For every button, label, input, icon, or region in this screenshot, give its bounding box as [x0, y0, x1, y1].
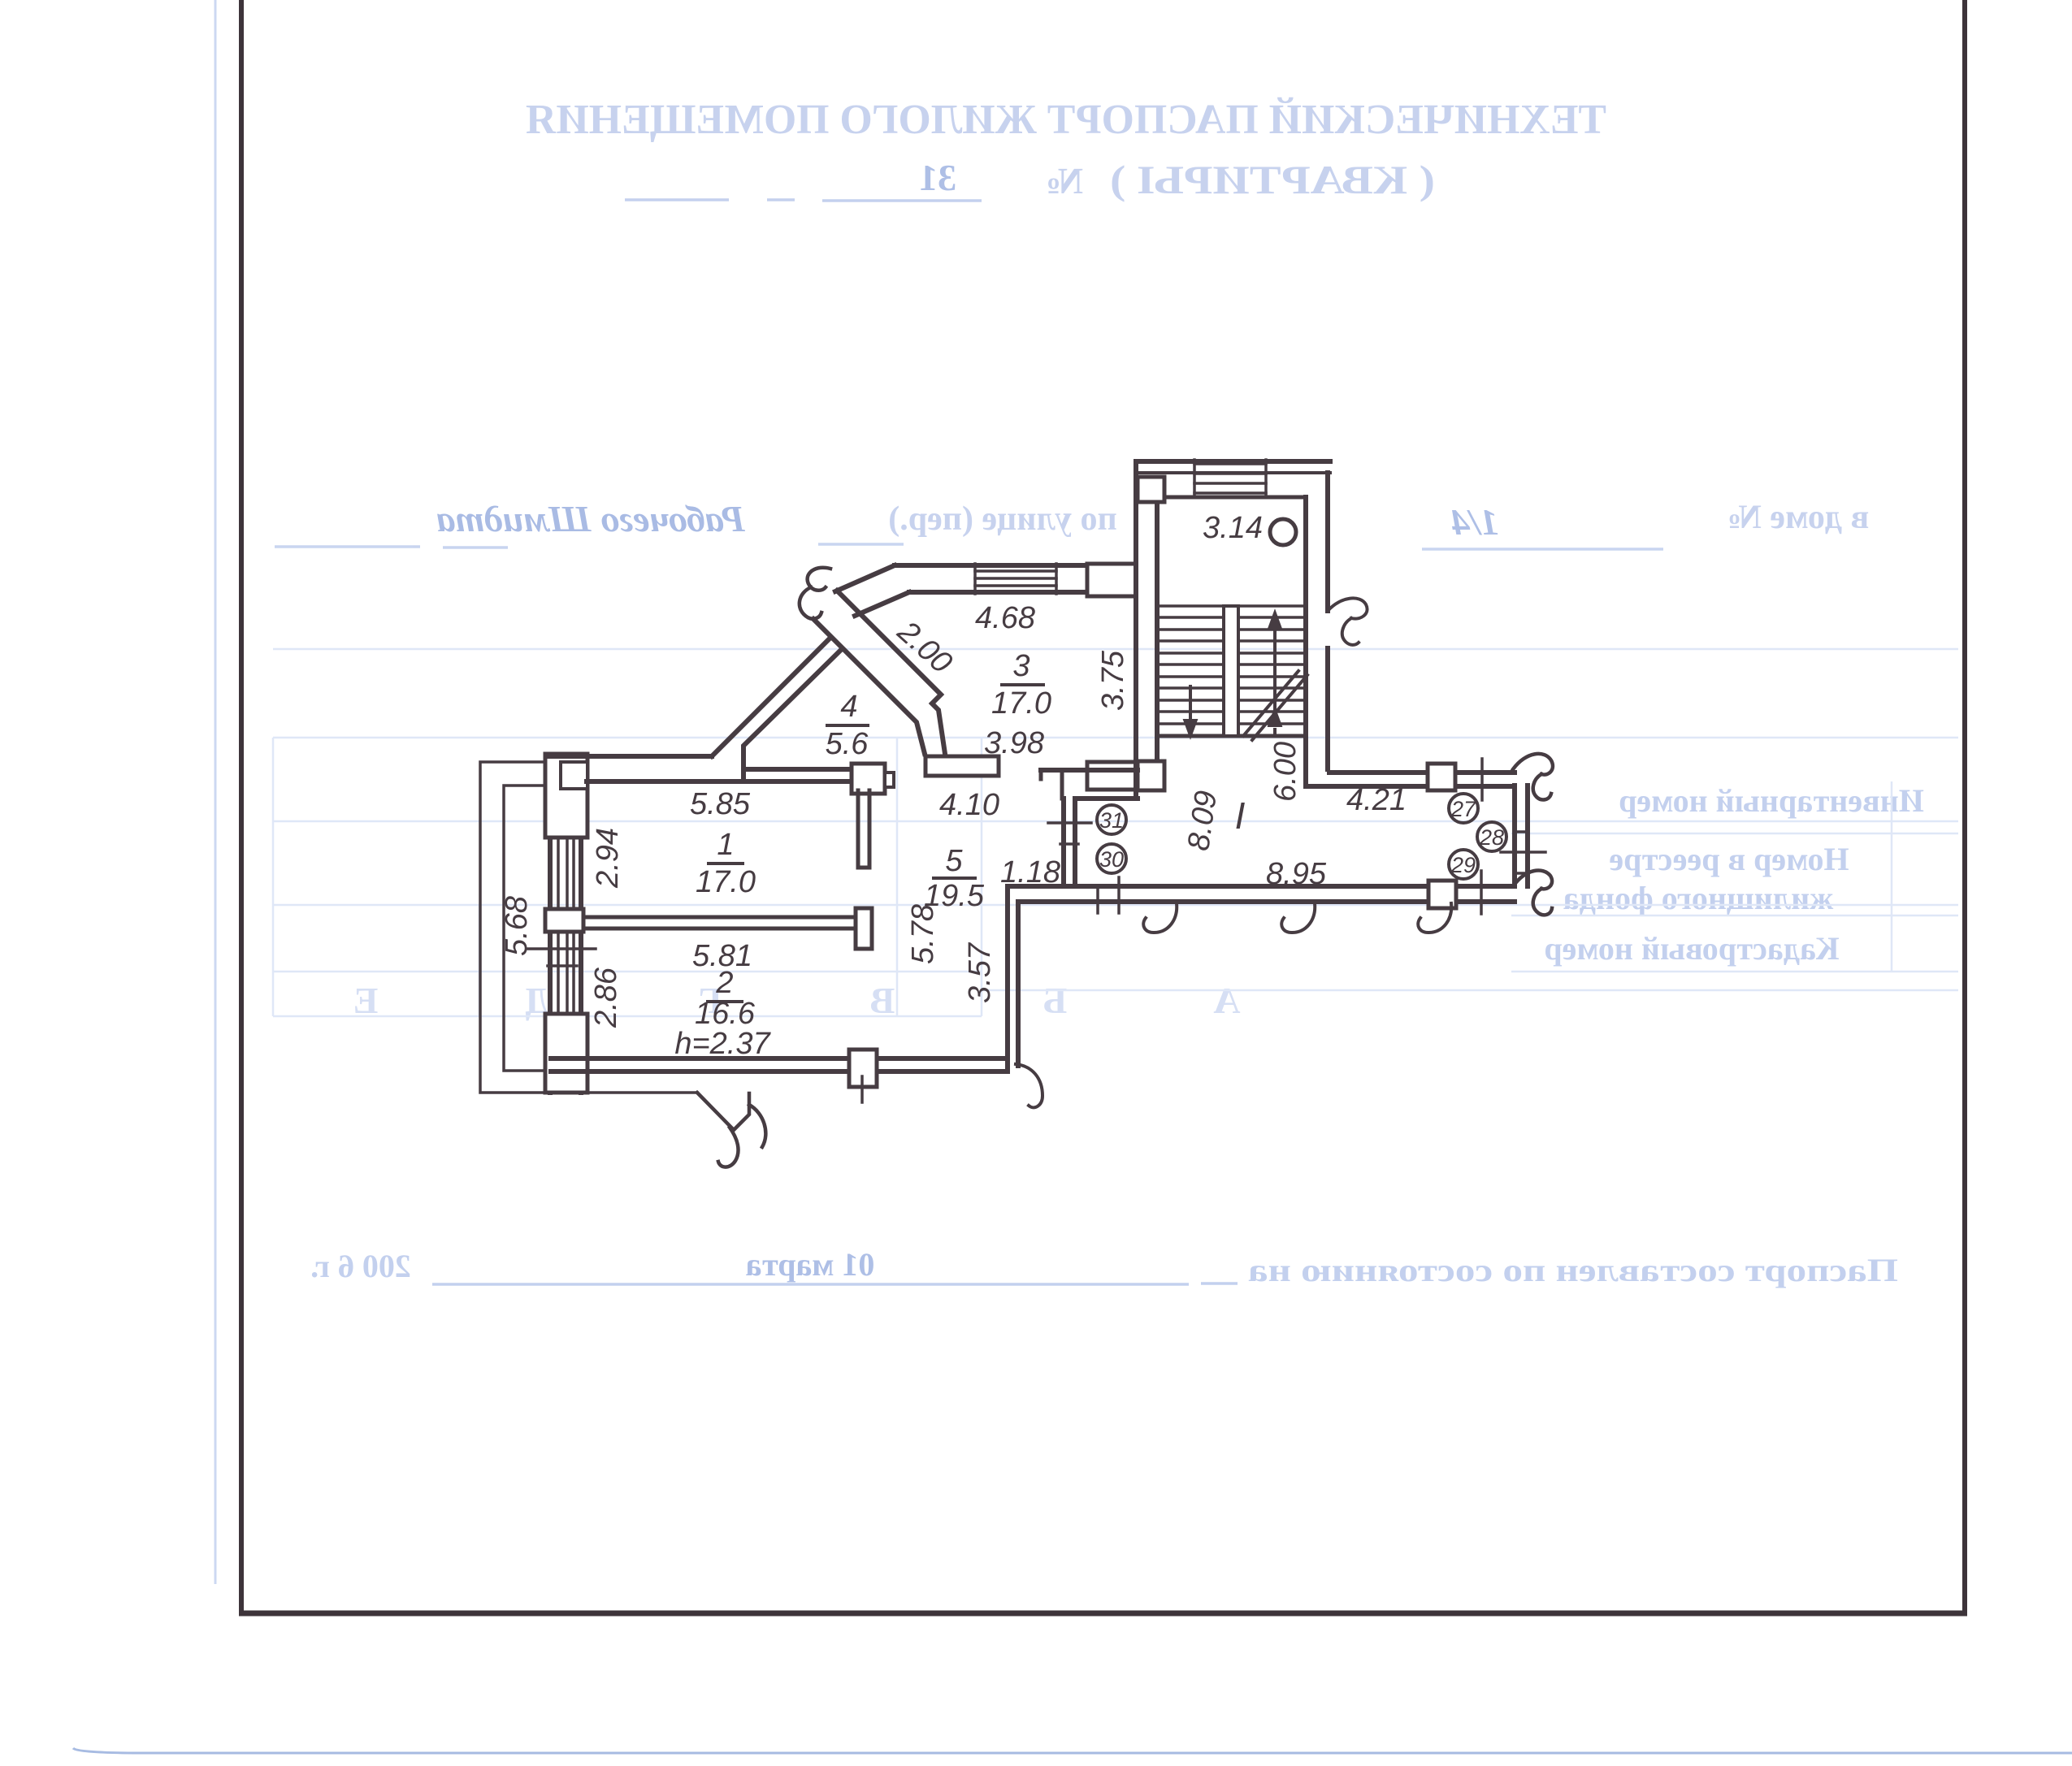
svg-text:27: 27 [1450, 797, 1476, 821]
svg-text:ТЕХНИЧЕСКИЙ ПАСПОРТ ЖИЛОГО ПОМ: ТЕХНИЧЕСКИЙ ПАСПОРТ ЖИЛОГО ПОМЕЩЕНИЯ [526, 97, 1606, 143]
svg-text:6.00: 6.00 [1268, 742, 1303, 802]
svg-text:1: 1 [717, 828, 734, 862]
svg-text:№: № [1046, 160, 1083, 201]
svg-text:А: А [1213, 980, 1240, 1021]
svg-text:3.98: 3.98 [984, 726, 1044, 760]
svg-text:30: 30 [1099, 847, 1124, 872]
svg-text:4.21: 4.21 [1346, 783, 1407, 817]
svg-text:Рабочего Шмидта: Рабочего Шмидта [436, 498, 746, 539]
svg-text:3.14: 3.14 [1203, 511, 1263, 545]
svg-text:5.85: 5.85 [690, 787, 751, 821]
svg-text:3.57: 3.57 [963, 941, 997, 1003]
svg-text:3: 3 [1012, 649, 1029, 683]
svg-text:200 6 г.: 200 6 г. [310, 1248, 411, 1284]
svg-text:17.0: 17.0 [991, 686, 1051, 721]
svg-text:4.68: 4.68 [975, 601, 1035, 635]
svg-text:Номер в реестре: Номер в реестре [1609, 841, 1849, 877]
svg-text:в доме №: в доме № [1727, 499, 1870, 536]
svg-text:31: 31 [919, 157, 956, 198]
svg-text:16.6: 16.6 [695, 997, 756, 1031]
svg-text:3.75: 3.75 [1096, 650, 1130, 711]
svg-text:4.10: 4.10 [939, 788, 999, 822]
svg-text:2.94: 2.94 [591, 828, 625, 889]
svg-text:Е: Е [353, 980, 379, 1021]
svg-text:Б: Б [1043, 980, 1067, 1021]
svg-text:по улице (пер.): по улице (пер.) [888, 500, 1116, 538]
svg-text:8.95: 8.95 [1266, 857, 1327, 891]
svg-text:01 марта: 01 марта [746, 1246, 875, 1283]
svg-text:1.18: 1.18 [1000, 855, 1060, 889]
svg-text:29: 29 [1450, 853, 1476, 877]
svg-text:Кадастровый номер: Кадастровый номер [1544, 930, 1839, 967]
svg-text:2.86: 2.86 [589, 967, 623, 1028]
svg-text:5.81: 5.81 [692, 939, 752, 973]
svg-text:жилищного фонда: жилищного фонда [1563, 880, 1833, 916]
svg-text:I: I [1235, 794, 1246, 837]
svg-text:h=2.37: h=2.37 [674, 1027, 771, 1061]
svg-text:4: 4 [840, 690, 857, 724]
svg-text:Паспорт составлен по состоянию: Паспорт составлен по состоянию на [1248, 1252, 1898, 1288]
svg-text:17.0: 17.0 [696, 865, 756, 899]
svg-text:5.68: 5.68 [500, 896, 534, 956]
svg-text:5.78: 5.78 [906, 904, 940, 964]
svg-text:28: 28 [1479, 825, 1504, 850]
svg-text:5.6: 5.6 [826, 727, 869, 761]
svg-text:Инвентарный номер: Инвентарный номер [1619, 782, 1924, 819]
svg-text:( КВАРТИРЫ ): ( КВАРТИРЫ ) [1110, 157, 1435, 202]
svg-text:31: 31 [1099, 808, 1124, 833]
svg-text:В: В [870, 980, 895, 1021]
svg-text:5: 5 [945, 844, 963, 878]
svg-text:1/4: 1/4 [1451, 501, 1499, 543]
